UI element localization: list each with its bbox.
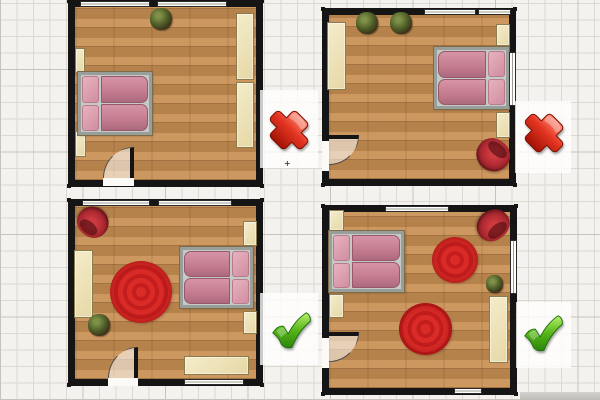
bed-head [232, 251, 249, 304]
double-bed[interactable] [434, 47, 509, 109]
bed-body [352, 235, 400, 288]
round-rug[interactable] [432, 237, 478, 283]
duvet [438, 51, 486, 78]
wardrobe[interactable] [236, 82, 254, 148]
duvet [438, 79, 486, 106]
nightstand[interactable] [243, 311, 257, 334]
cross-icon [266, 107, 312, 153]
selection-handle[interactable] [514, 392, 518, 396]
potted-plant[interactable] [390, 12, 412, 34]
selection-handle[interactable] [67, 184, 71, 188]
bed-body [101, 76, 148, 131]
window [424, 9, 476, 15]
selection-handle[interactable] [321, 7, 325, 11]
shelf[interactable] [75, 48, 85, 73]
move-cursor-icon[interactable]: + [284, 160, 291, 168]
window [509, 52, 516, 106]
check-icon [268, 307, 314, 353]
door-opening [322, 141, 329, 171]
check-icon [520, 310, 566, 356]
nightstand[interactable] [329, 210, 344, 231]
selection-handle[interactable] [67, 383, 71, 387]
window [184, 379, 244, 385]
potted-plant[interactable] [356, 12, 378, 34]
pillow [333, 235, 350, 261]
cross-icon [521, 110, 567, 156]
window [80, 1, 150, 7]
nightstand[interactable] [496, 24, 510, 46]
round-rug[interactable] [399, 303, 452, 355]
window [510, 240, 517, 294]
selection-handle[interactable] [260, 0, 264, 3]
duvet [184, 251, 230, 277]
selection-handle[interactable] [67, 198, 71, 202]
double-bed[interactable] [180, 247, 253, 308]
door-opening [103, 178, 134, 186]
pillow [232, 251, 249, 277]
selection-handle[interactable] [321, 183, 325, 187]
bed-head [488, 51, 505, 105]
pillow [488, 51, 505, 77]
bed-inner [82, 76, 148, 131]
bench[interactable] [184, 356, 249, 375]
pillow [82, 76, 99, 103]
pillow [82, 105, 99, 132]
window [454, 388, 482, 394]
door-opening [108, 378, 138, 386]
duvet [352, 262, 400, 288]
duvet [352, 235, 400, 261]
double-bed[interactable] [78, 72, 152, 135]
wardrobe[interactable] [236, 13, 254, 80]
selection-handle[interactable] [513, 183, 517, 187]
potted-plant[interactable] [486, 275, 503, 293]
selection-handle[interactable] [260, 184, 264, 188]
selection-handle[interactable] [260, 198, 264, 202]
floorplan-canvas: + [0, 0, 600, 400]
wardrobe[interactable] [327, 22, 346, 90]
duvet [101, 76, 148, 103]
duvet [184, 278, 230, 304]
nightstand[interactable] [329, 294, 344, 318]
scrollbar-fragment[interactable] [520, 392, 600, 400]
bed-body [438, 51, 486, 105]
window [158, 200, 232, 206]
window [385, 206, 449, 212]
bed-inner [438, 51, 505, 105]
duvet [101, 104, 148, 131]
selection-handle[interactable] [321, 204, 325, 208]
bed-head [82, 76, 99, 131]
wardrobe[interactable] [489, 296, 508, 363]
selection-handle[interactable] [513, 7, 517, 11]
selection-handle[interactable] [67, 0, 71, 3]
window [157, 1, 227, 7]
bed-body [184, 251, 230, 304]
round-rug[interactable] [110, 261, 172, 323]
bed-inner [184, 251, 249, 304]
potted-plant[interactable] [88, 314, 110, 336]
nightstand[interactable] [496, 112, 510, 138]
pillow [333, 263, 350, 289]
potted-plant[interactable] [150, 8, 172, 30]
pillow [488, 79, 505, 105]
bed-inner [333, 235, 400, 288]
bed-head [333, 235, 350, 288]
pillow [232, 279, 249, 305]
wardrobe[interactable] [74, 250, 93, 318]
window [478, 9, 511, 15]
door-opening [322, 338, 329, 368]
window [82, 200, 150, 206]
nightstand[interactable] [243, 221, 257, 246]
double-bed[interactable] [329, 231, 404, 292]
selection-handle[interactable] [260, 383, 264, 387]
selection-handle[interactable] [514, 204, 518, 208]
selection-handle[interactable] [321, 392, 325, 396]
